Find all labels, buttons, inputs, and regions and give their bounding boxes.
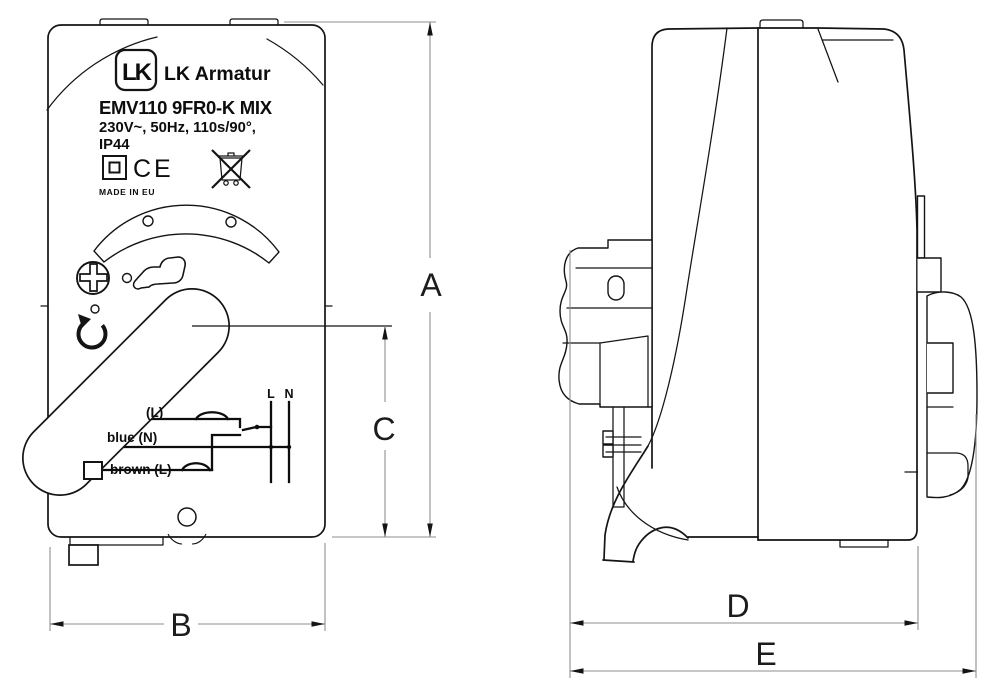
- brand-text: LK Armatur: [164, 63, 271, 85]
- front-cap-slant: [648, 28, 727, 446]
- bottom-strip: [70, 537, 163, 545]
- front-view: LK LK Armatur EMV110 9FR0-K MIX 230V~, 5…: [41, 19, 332, 565]
- rear-tab: [918, 196, 925, 258]
- power-cable: [603, 446, 688, 562]
- side-top-tab: [760, 20, 803, 28]
- bracket-slot: [608, 276, 624, 300]
- cable-end-cap: [603, 560, 634, 562]
- drawing-svg: LK LK Armatur EMV110 9FR0-K MIX 230V~, 5…: [0, 0, 1000, 698]
- side-body-left-edge: [652, 28, 758, 468]
- dimension-b-label: B: [170, 607, 191, 643]
- side-foot-strip: [840, 540, 888, 547]
- dimension-e-label: E: [755, 636, 776, 672]
- terminal-l-label: L: [267, 387, 275, 401]
- top-tab-left: [100, 19, 148, 25]
- bottom-foot-tab: [69, 545, 98, 565]
- terminal-n-label: N: [284, 387, 293, 401]
- technical-drawing-canvas: LK LK Armatur EMV110 9FR0-K MIX 230V~, 5…: [0, 0, 1000, 698]
- dimension-b: B: [50, 607, 325, 643]
- made-in-text: MADE IN EU: [99, 187, 155, 197]
- wire-terminal-box: [84, 462, 102, 479]
- side-view: [559, 20, 977, 562]
- lk-logo-icon: LK: [122, 59, 153, 86]
- dimension-a-label: A: [420, 267, 442, 303]
- model-text: EMV110 9FR0-K MIX: [99, 97, 273, 118]
- indicator-dot-lower: [91, 305, 99, 313]
- dimension-c: C: [372, 326, 395, 537]
- side-body-right-edge: [758, 28, 917, 540]
- lever-bracket-side: [559, 240, 652, 407]
- top-tab-right: [230, 19, 278, 25]
- wire-bottom-label: brown (L): [110, 462, 171, 477]
- wire-top-label: (L): [146, 405, 163, 420]
- dimension-e: E: [570, 636, 976, 674]
- dimension-d-label: D: [726, 588, 749, 624]
- side-top-diagonal: [818, 29, 838, 82]
- dimension-a: A: [420, 22, 442, 537]
- rear-step: [918, 258, 942, 292]
- indicator-dot-upper: [123, 274, 132, 283]
- lever-shaft: [603, 407, 641, 507]
- rear-knob: [905, 292, 977, 498]
- scale-hole-left: [143, 216, 153, 226]
- ip-rating-text: IP44: [99, 137, 130, 153]
- wire-middle-label: blue (N): [107, 430, 157, 445]
- dimension-d: D: [570, 588, 918, 626]
- ce-mark-icon: CE: [133, 155, 174, 183]
- scale-hole-right: [226, 217, 236, 227]
- dimension-c-label: C: [372, 411, 395, 447]
- electrical-specs-text: 230V~, 50Hz, 110s/90°,: [99, 120, 256, 136]
